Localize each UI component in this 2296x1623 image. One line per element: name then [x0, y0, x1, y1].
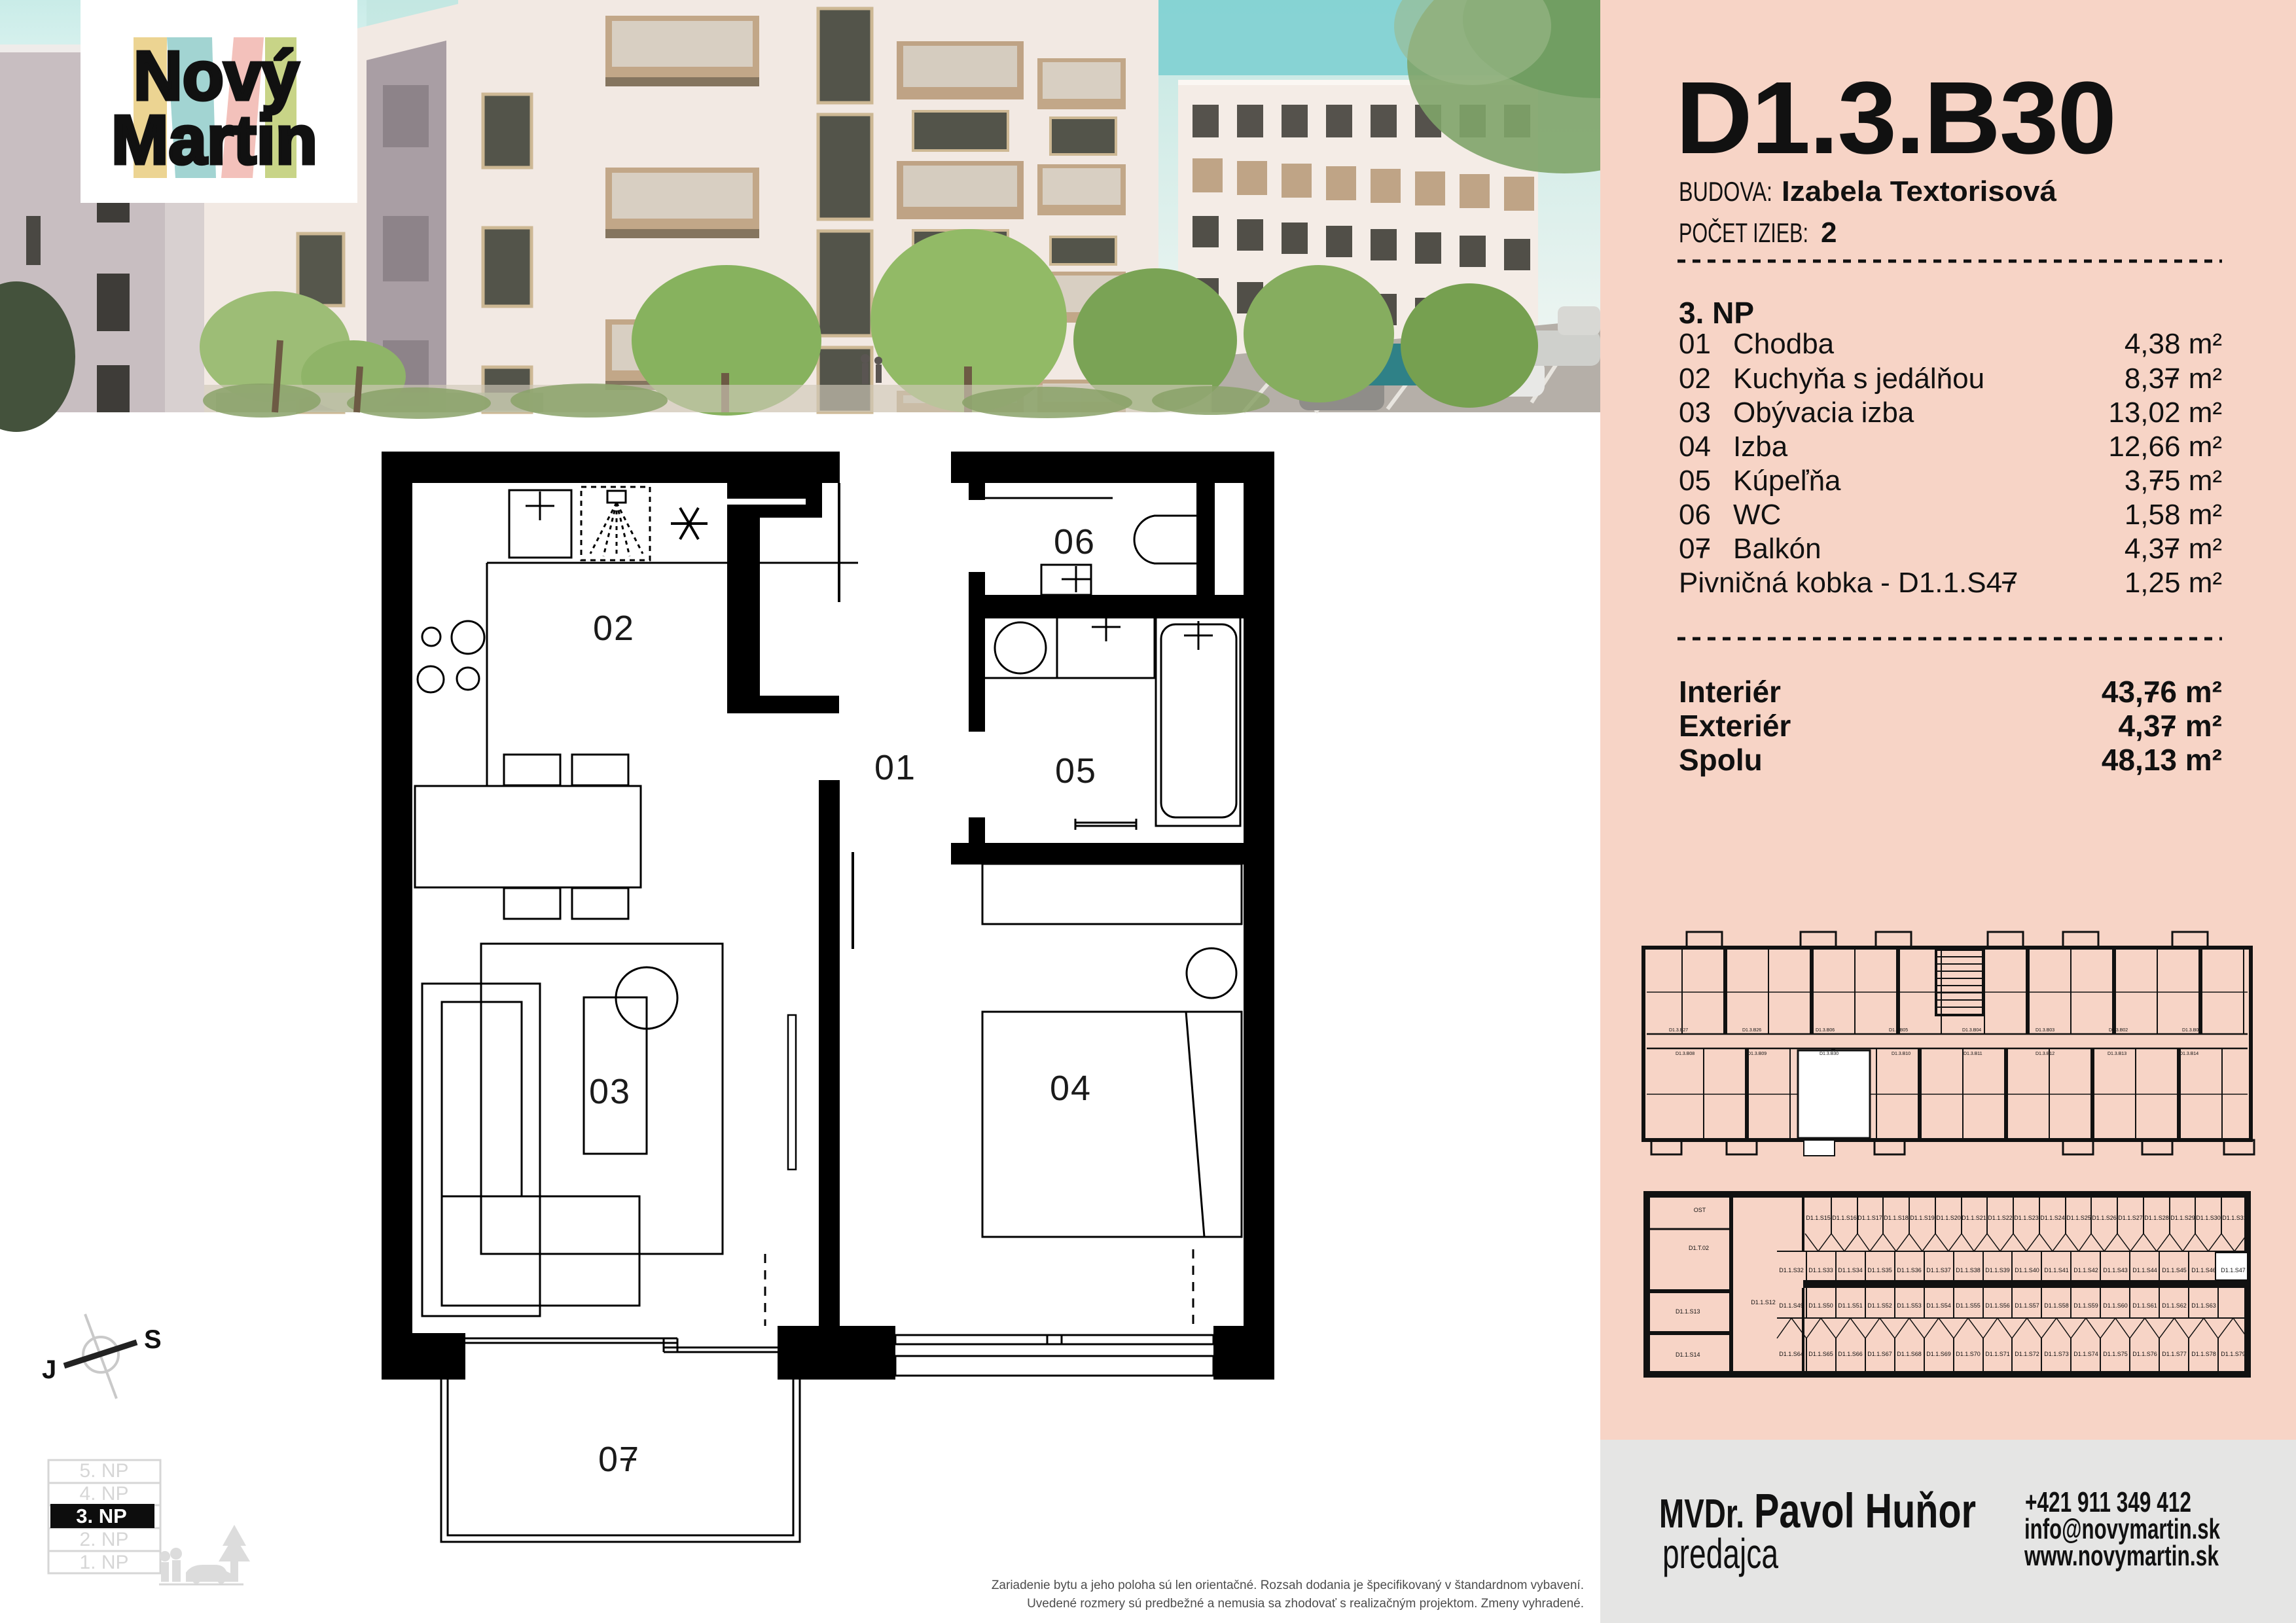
- svg-text:D1.1.S61: D1.1.S61: [2132, 1302, 2157, 1309]
- svg-text:D1.1.S71: D1.1.S71: [1985, 1351, 2010, 1357]
- svg-text:D1.1.S24: D1.1.S24: [2040, 1215, 2065, 1221]
- svg-text:D1.3.B26: D1.3.B26: [1742, 1028, 1761, 1033]
- svg-text:D1.3.B06: D1.3.B06: [1816, 1028, 1835, 1033]
- svg-text:D1.1.S64: D1.1.S64: [1779, 1351, 1804, 1357]
- svg-text:D1.1.S30: D1.1.S30: [2196, 1215, 2221, 1221]
- svg-text:07: 07: [598, 1440, 640, 1479]
- svg-text:D1.1.S45: D1.1.S45: [2162, 1267, 2187, 1274]
- svg-text:D1.3.B04: D1.3.B04: [1962, 1028, 1981, 1033]
- svg-text:D1.3.B30: D1.3.B30: [1820, 1052, 1839, 1056]
- svg-text:Spolu: Spolu: [1679, 743, 1763, 777]
- svg-text:D1.1.S33: D1.1.S33: [1808, 1267, 1833, 1274]
- svg-text:D1.3.B03: D1.3.B03: [2036, 1028, 2054, 1033]
- svg-text:D1.1.S62: D1.1.S62: [2162, 1302, 2187, 1309]
- svg-text:Izba: Izba: [1733, 431, 1788, 463]
- svg-text:D1.3.B11: D1.3.B11: [1964, 1052, 1982, 1056]
- svg-text:D1.1.S37: D1.1.S37: [1926, 1267, 1951, 1274]
- svg-text:D1.1.S63: D1.1.S63: [2191, 1302, 2216, 1309]
- svg-text:D1.1.S32: D1.1.S32: [1779, 1267, 1804, 1274]
- svg-text:1. NP: 1. NP: [79, 1552, 128, 1573]
- svg-text:D1.1.S46: D1.1.S46: [2191, 1267, 2216, 1274]
- svg-text:Chodba: Chodba: [1733, 328, 1835, 360]
- svg-text:D1.1.S26: D1.1.S26: [2092, 1215, 2117, 1221]
- svg-text:3,75 m²: 3,75 m²: [2125, 465, 2222, 497]
- svg-text:D1.3.B30: D1.3.B30: [1676, 61, 2115, 175]
- svg-text:D1.1.S54: D1.1.S54: [1926, 1302, 1951, 1309]
- svg-text:02: 02: [593, 609, 635, 648]
- svg-text:D1.1.S28: D1.1.S28: [2144, 1215, 2169, 1221]
- svg-text:D1.1.S44: D1.1.S44: [2132, 1267, 2157, 1274]
- svg-text:01: 01: [1679, 328, 1711, 360]
- svg-text:D1.1.S75: D1.1.S75: [2103, 1351, 2128, 1357]
- svg-text:D1.1.S43: D1.1.S43: [2103, 1267, 2128, 1274]
- svg-text:4. NP: 4. NP: [79, 1483, 128, 1505]
- svg-text:D1.1.S56: D1.1.S56: [1985, 1302, 2010, 1309]
- svg-text:D1.1.S13: D1.1.S13: [1676, 1308, 1700, 1315]
- svg-text:D1.1.S35: D1.1.S35: [1867, 1267, 1892, 1274]
- svg-text:D1.1.S20: D1.1.S20: [1936, 1215, 1961, 1221]
- svg-text:01: 01: [874, 748, 916, 787]
- svg-text:BUDOVA:: BUDOVA:: [1679, 176, 1772, 207]
- svg-text:D1.1.S27: D1.1.S27: [2118, 1215, 2143, 1221]
- svg-text:D1.1.S68: D1.1.S68: [1897, 1351, 1922, 1357]
- svg-text:J: J: [42, 1355, 56, 1384]
- svg-text:06: 06: [1054, 522, 1096, 562]
- svg-text:D1.3.B09: D1.3.B09: [1748, 1052, 1767, 1056]
- svg-text:D1.1.S39: D1.1.S39: [1985, 1267, 2010, 1274]
- svg-text:D1.1.S72: D1.1.S72: [2015, 1351, 2039, 1357]
- svg-text:D1.1.S23: D1.1.S23: [2014, 1215, 2039, 1221]
- svg-text:04: 04: [1050, 1069, 1092, 1108]
- svg-text:D1.1.S34: D1.1.S34: [1838, 1267, 1863, 1274]
- svg-text:D1.1.S76: D1.1.S76: [2132, 1351, 2157, 1357]
- svg-text:D1.1.S16: D1.1.S16: [1832, 1215, 1857, 1221]
- svg-text:D1.1.S25: D1.1.S25: [2066, 1215, 2091, 1221]
- svg-text:D1.1.S77: D1.1.S77: [2162, 1351, 2187, 1357]
- svg-text:D1.1.S38: D1.1.S38: [1956, 1267, 1981, 1274]
- svg-text:06: 06: [1679, 499, 1711, 531]
- svg-text:Uvedené rozmery sú predbežné a: Uvedené rozmery sú predbežné a nemusia s…: [1027, 1597, 1584, 1611]
- svg-text:D1.3.B02: D1.3.B02: [2109, 1028, 2128, 1033]
- svg-text:D1.1.S29: D1.1.S29: [2170, 1215, 2195, 1221]
- svg-text:D1.3.B10: D1.3.B10: [1892, 1052, 1910, 1056]
- svg-text:2: 2: [1821, 217, 1837, 249]
- svg-text:OST: OST: [1694, 1207, 1706, 1213]
- svg-text:Obývacia izba: Obývacia izba: [1733, 397, 1914, 429]
- svg-text:5. NP: 5. NP: [79, 1460, 128, 1482]
- svg-text:D1.1.S65: D1.1.S65: [1808, 1351, 1833, 1357]
- svg-text:D1.1.S12: D1.1.S12: [1751, 1299, 1776, 1306]
- svg-text:D1.1.S66: D1.1.S66: [1838, 1351, 1863, 1357]
- svg-text:D1.3.B01: D1.3.B01: [2182, 1028, 2201, 1033]
- svg-text:D1.1.S14: D1.1.S14: [1676, 1351, 1700, 1358]
- svg-text:D1.1.S18: D1.1.S18: [1884, 1215, 1909, 1221]
- svg-text:D1.1.S78: D1.1.S78: [2191, 1351, 2216, 1357]
- svg-text:05: 05: [1679, 465, 1711, 497]
- svg-text:Kuchyňa s jedálňou: Kuchyňa s jedálňou: [1733, 363, 1984, 395]
- svg-text:S: S: [144, 1325, 162, 1354]
- svg-text:D1.3.B13: D1.3.B13: [2108, 1052, 2126, 1056]
- svg-text:D1.1.S55: D1.1.S55: [1956, 1302, 1981, 1309]
- svg-text:D1.3.B27: D1.3.B27: [1669, 1028, 1688, 1033]
- svg-text:D1.T.02: D1.T.02: [1689, 1245, 1709, 1251]
- svg-text:D1.1.S74: D1.1.S74: [2073, 1351, 2098, 1357]
- svg-text:D1.1.S58: D1.1.S58: [2044, 1302, 2069, 1309]
- svg-text:Pivničná kobka - D1.1.S47: Pivničná kobka - D1.1.S47: [1679, 567, 2018, 599]
- svg-text:Martin: Martin: [111, 101, 317, 179]
- svg-text:05: 05: [1055, 751, 1097, 791]
- svg-text:04: 04: [1679, 431, 1711, 463]
- svg-text:D1.1.S79: D1.1.S79: [2221, 1351, 2246, 1357]
- svg-text:D1.3.B05: D1.3.B05: [1889, 1028, 1908, 1033]
- svg-text:Kúpeľňa: Kúpeľňa: [1733, 465, 1841, 497]
- svg-text:D1.1.S19: D1.1.S19: [1910, 1215, 1935, 1221]
- svg-text:4,38 m²: 4,38 m²: [2125, 328, 2222, 360]
- svg-text:02: 02: [1679, 363, 1711, 395]
- svg-text:D1.1.S22: D1.1.S22: [1988, 1215, 2013, 1221]
- svg-text:POČET IZIEB:: POČET IZIEB:: [1679, 217, 1808, 248]
- svg-text:D1.1.S36: D1.1.S36: [1897, 1267, 1922, 1274]
- svg-text:D1.1.S40: D1.1.S40: [2015, 1267, 2039, 1274]
- svg-text:www.novymartin.sk: www.novymartin.sk: [2024, 1540, 2219, 1572]
- svg-text:D1.3.B08: D1.3.B08: [1676, 1052, 1695, 1056]
- svg-text:D1.1.S57: D1.1.S57: [2015, 1302, 2039, 1309]
- svg-text:Balkón: Balkón: [1733, 533, 1821, 565]
- svg-text:D1.1.S60: D1.1.S60: [2103, 1302, 2128, 1309]
- svg-text:1,25 m²: 1,25 m²: [2125, 567, 2222, 599]
- svg-text:predajca: predajca: [1662, 1530, 1778, 1577]
- svg-text:D1.1.S59: D1.1.S59: [2073, 1302, 2098, 1309]
- svg-text:WC: WC: [1733, 499, 1781, 531]
- svg-text:Interiér: Interiér: [1679, 675, 1781, 709]
- svg-text:48,13 m²: 48,13 m²: [2102, 743, 2222, 777]
- svg-text:3. NP: 3. NP: [1679, 296, 1754, 330]
- svg-text:Pavol Huňor: Pavol Huňor: [1754, 1484, 1976, 1538]
- svg-text:D1.1.S52: D1.1.S52: [1867, 1302, 1892, 1309]
- svg-text:D1.1.S51: D1.1.S51: [1838, 1302, 1863, 1309]
- svg-text:D1.1.S21: D1.1.S21: [1962, 1215, 1986, 1221]
- svg-text:D1.3.B14: D1.3.B14: [2179, 1052, 2198, 1056]
- svg-text:12,66 m²: 12,66 m²: [2108, 431, 2222, 463]
- svg-text:1,58 m²: 1,58 m²: [2125, 499, 2222, 531]
- svg-text:D1.1.S41: D1.1.S41: [2044, 1267, 2069, 1274]
- svg-text:D1.1.S50: D1.1.S50: [1808, 1302, 1833, 1309]
- svg-text:2. NP: 2. NP: [79, 1529, 128, 1550]
- svg-text:Zariadenie bytu a jeho poloha: Zariadenie bytu a jeho poloha sú len ori…: [992, 1578, 1584, 1592]
- svg-text:D1.1.S49: D1.1.S49: [1779, 1302, 1804, 1309]
- svg-text:D1.1.S47: D1.1.S47: [2221, 1267, 2246, 1274]
- svg-text:D1.1.S67: D1.1.S67: [1867, 1351, 1892, 1357]
- svg-text:D1.1.S31: D1.1.S31: [2222, 1215, 2247, 1221]
- svg-text:D1.1.S53: D1.1.S53: [1897, 1302, 1922, 1309]
- svg-text:D1.3.B12: D1.3.B12: [2036, 1052, 2054, 1056]
- svg-text:D1.1.S42: D1.1.S42: [2073, 1267, 2098, 1274]
- svg-text:D1.1.S69: D1.1.S69: [1926, 1351, 1951, 1357]
- svg-text:D1.1.S15: D1.1.S15: [1806, 1215, 1831, 1221]
- svg-text:Exteriér: Exteriér: [1679, 709, 1791, 743]
- svg-text:03: 03: [589, 1072, 631, 1111]
- svg-text:3. NP: 3. NP: [76, 1505, 127, 1527]
- svg-text:D1.1.S17: D1.1.S17: [1857, 1215, 1882, 1221]
- svg-text:13,02 m²: 13,02 m²: [2108, 397, 2222, 429]
- svg-text:03: 03: [1679, 397, 1711, 429]
- svg-text:Izabela Textorisová: Izabela Textorisová: [1782, 175, 2057, 207]
- svg-text:43,76 m²: 43,76 m²: [2102, 675, 2222, 709]
- svg-text:D1.1.S73: D1.1.S73: [2044, 1351, 2069, 1357]
- svg-text:D1.1.S70: D1.1.S70: [1956, 1351, 1981, 1357]
